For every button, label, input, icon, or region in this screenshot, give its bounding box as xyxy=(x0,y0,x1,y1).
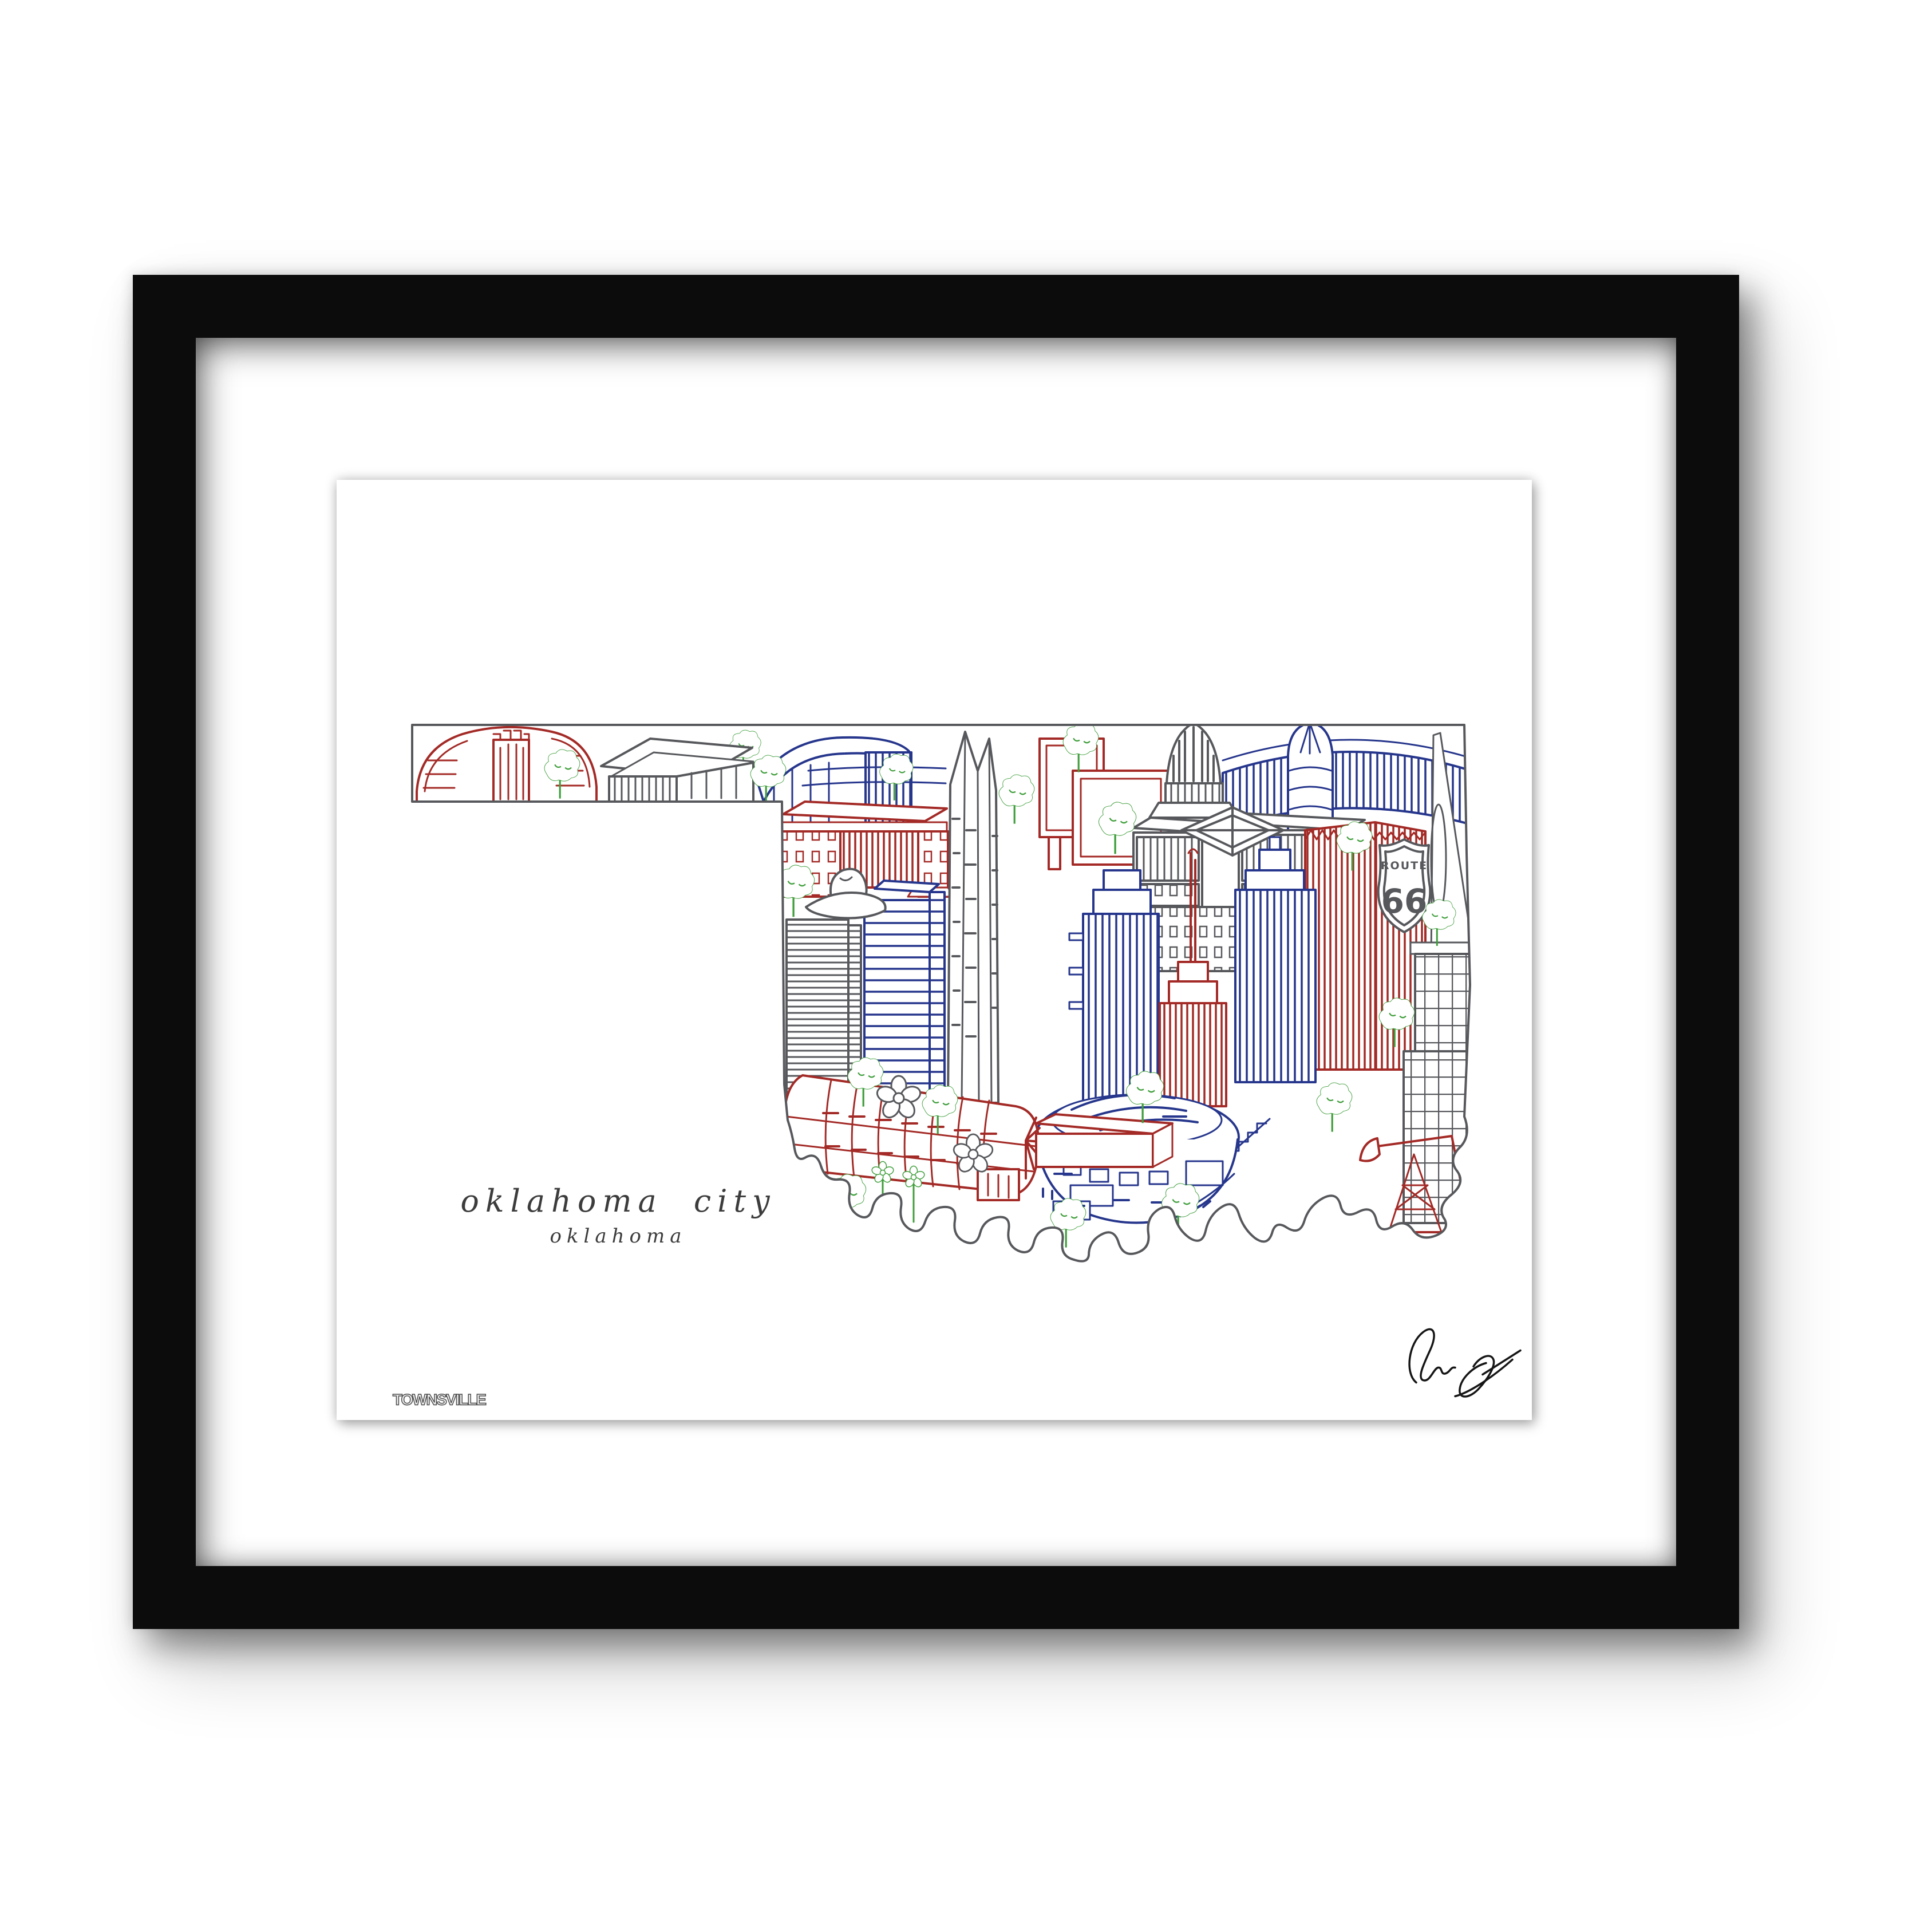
mat-board: ROUTE 66 xyxy=(196,338,1676,1566)
artist-signature xyxy=(1400,1317,1535,1417)
blue-cylinder-tower xyxy=(1288,723,1333,830)
title-block: oklahoma city oklahoma xyxy=(418,1183,819,1248)
wall-background: ROUTE 66 xyxy=(0,0,1932,1909)
artwork-subtitle: oklahoma xyxy=(418,1225,819,1248)
picture-frame: ROUTE 66 xyxy=(133,275,1739,1629)
route-sign-number: 66 xyxy=(1381,882,1428,921)
glass-tower xyxy=(1404,900,1472,1223)
first-national-tower xyxy=(1235,837,1315,1082)
devon-tower xyxy=(948,732,998,1103)
art-print: ROUTE 66 xyxy=(337,480,1532,1420)
route-sign-word: ROUTE xyxy=(1381,859,1428,872)
artwork-title: oklahoma city xyxy=(418,1183,819,1219)
publisher-logo: TOWNSVILLE xyxy=(393,1391,485,1409)
